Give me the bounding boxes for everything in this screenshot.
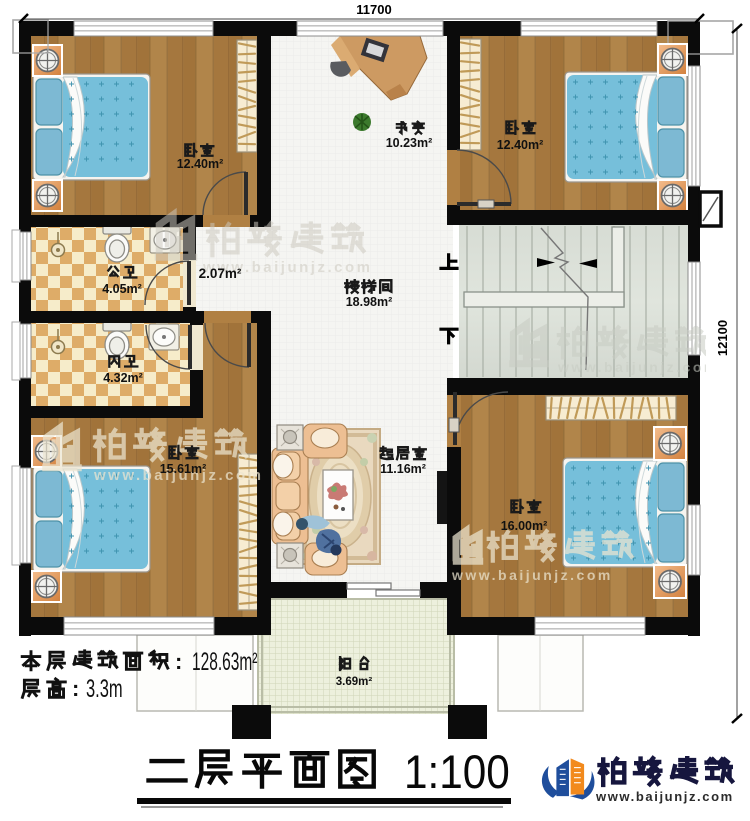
svg-text:www.baijunjz.com: www.baijunjz.com xyxy=(595,789,734,804)
svg-text:18.98m²: 18.98m² xyxy=(346,295,393,309)
svg-text:www.baijunjz.com: www.baijunjz.com xyxy=(557,359,719,375)
svg-text:3.3m: 3.3m xyxy=(86,676,123,703)
svg-text:11700: 11700 xyxy=(356,2,391,17)
svg-text:www.baijunjz.com: www.baijunjz.com xyxy=(451,567,613,583)
svg-text:15.61m²: 15.61m² xyxy=(160,462,207,476)
svg-text:12.40m²: 12.40m² xyxy=(497,138,544,152)
svg-text::: : xyxy=(175,649,182,674)
svg-text::: : xyxy=(72,676,79,701)
svg-text:1:100: 1:100 xyxy=(404,747,510,799)
svg-text:3.69m²: 3.69m² xyxy=(336,676,373,688)
svg-text:128.63m²: 128.63m² xyxy=(192,648,257,676)
svg-text:12100: 12100 xyxy=(715,320,730,356)
svg-text:4.05m²: 4.05m² xyxy=(102,282,142,296)
svg-text:2.07m²: 2.07m² xyxy=(199,266,242,281)
svg-text:11.16m²: 11.16m² xyxy=(380,462,426,476)
svg-text:12.40m²: 12.40m² xyxy=(177,157,224,171)
svg-text:4.32m²: 4.32m² xyxy=(103,371,143,385)
svg-text:16.00m²: 16.00m² xyxy=(501,519,548,533)
svg-text:10.23m²: 10.23m² xyxy=(386,136,433,150)
